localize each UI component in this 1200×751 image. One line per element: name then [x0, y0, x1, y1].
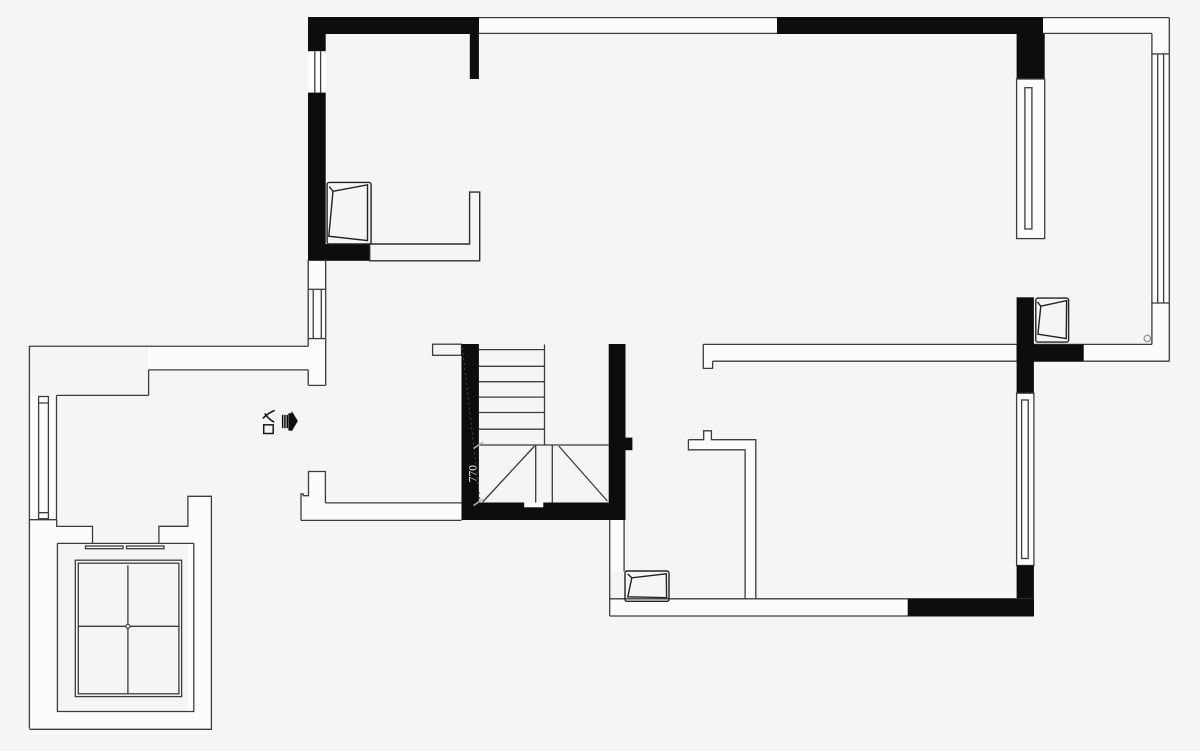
svg-text:770: 770	[468, 465, 480, 483]
